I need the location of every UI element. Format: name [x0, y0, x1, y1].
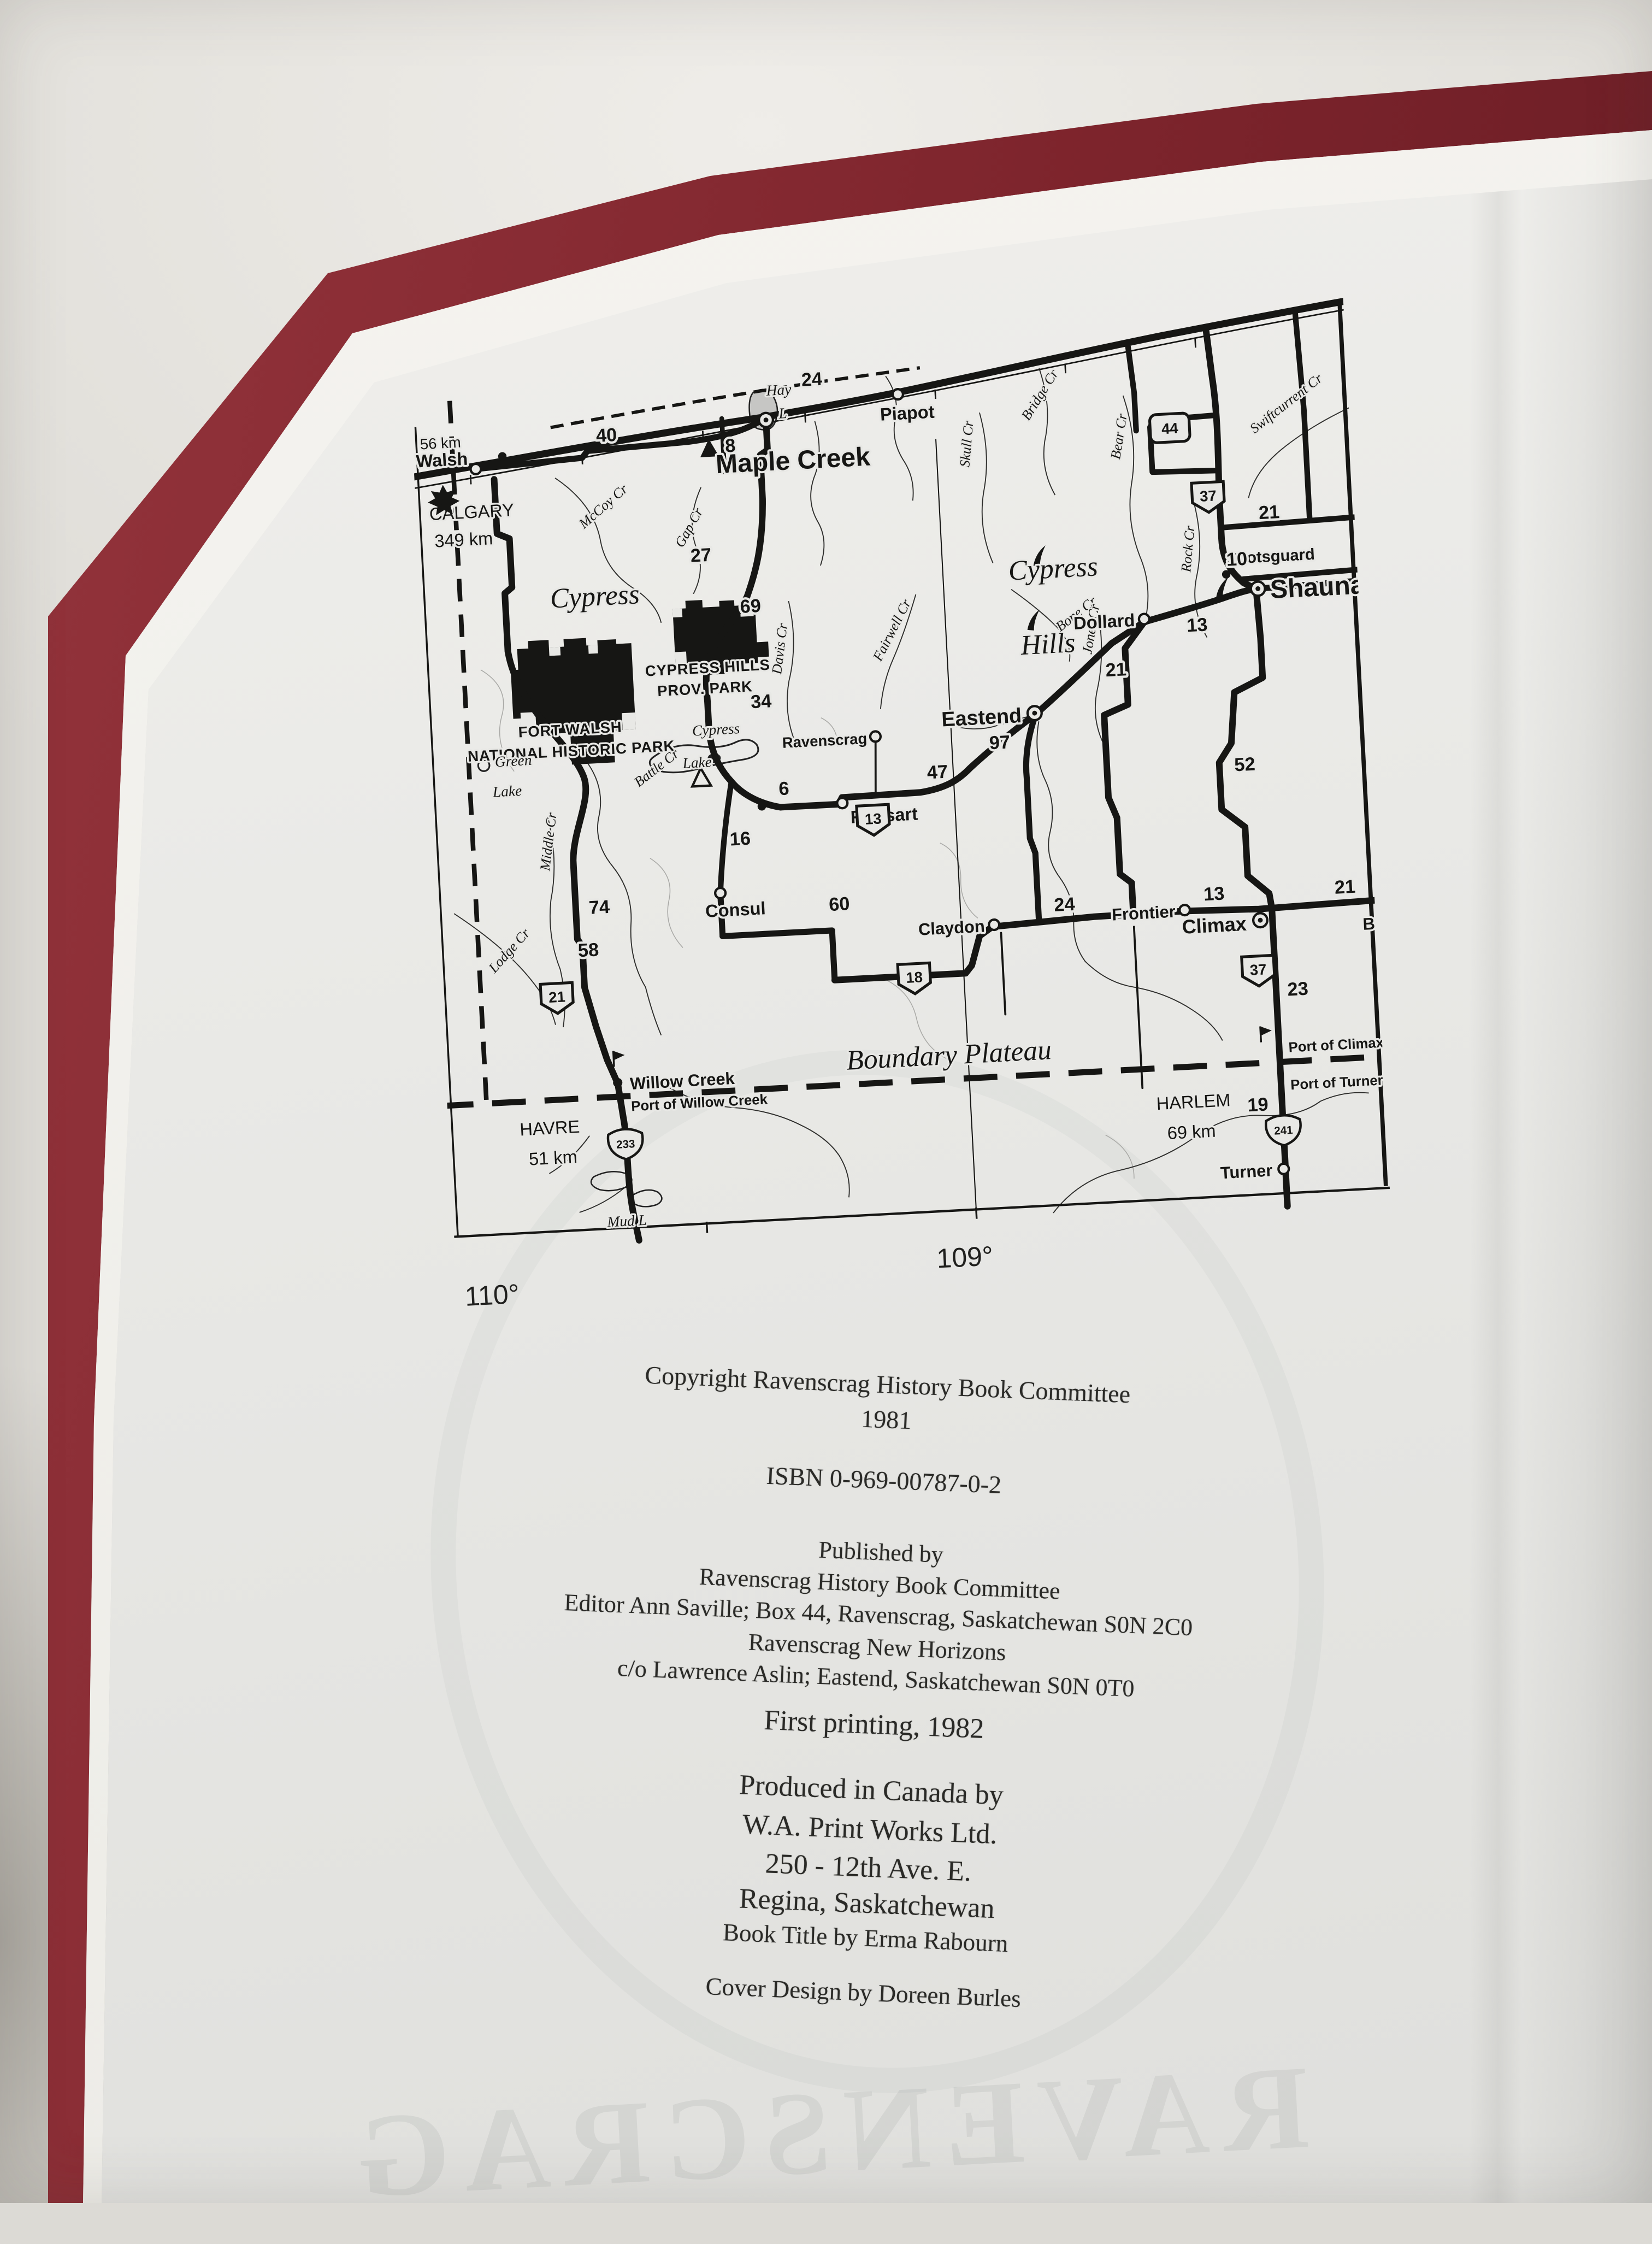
us-route-shield: 241	[1265, 1115, 1301, 1146]
park-area	[686, 600, 703, 610]
road	[1295, 311, 1310, 520]
page-crease	[1470, 0, 1521, 2203]
creek-label: Bridge Cr	[1018, 366, 1062, 423]
shield-number: 13	[864, 810, 882, 828]
colophon-text-block: Copyright Ravenscrag History Book Commit…	[204, 1321, 1544, 2127]
point-of-interest-icon	[1026, 610, 1041, 631]
boxed-route-shield: 44	[1149, 413, 1190, 443]
shield-number: 37	[1249, 961, 1267, 979]
route-number: 52	[1234, 754, 1255, 776]
road	[1221, 516, 1362, 527]
route-number: 13	[1203, 883, 1225, 905]
lake-label: Mud L	[606, 1212, 647, 1230]
town-circle	[470, 463, 481, 474]
route-number: 24	[1053, 894, 1075, 916]
town-label: Eastend	[941, 704, 1022, 731]
town-circle	[1278, 1163, 1289, 1174]
route-number: 69	[740, 596, 762, 617]
region-label: Boundary Plateau	[846, 1034, 1052, 1076]
creek-label: Gap Cr	[671, 504, 706, 550]
shield-number: 44	[1161, 420, 1179, 438]
railway-tick	[470, 475, 471, 484]
creek-line	[977, 413, 993, 564]
railway-tick	[1065, 364, 1066, 373]
town-label: Piapot	[880, 402, 935, 425]
provincial-highway-shield: 18	[898, 963, 931, 994]
map-note-label: Port of Climax	[1288, 1035, 1384, 1055]
provincial-highway-shield: 21	[540, 982, 574, 1014]
shield-number: 1	[440, 496, 447, 509]
town-circle	[1138, 614, 1149, 625]
longitude-label-109: 109°	[936, 1240, 994, 1274]
park-area	[719, 600, 734, 608]
town-label: Ravenscrag	[782, 730, 868, 751]
flag-pennant	[613, 1050, 625, 1060]
park-notch	[549, 647, 560, 656]
park-area	[753, 641, 769, 657]
route-number: 23	[1287, 979, 1309, 1000]
town-label: Claydon	[918, 916, 985, 939]
town-circle	[1179, 905, 1190, 916]
map-note-label: HAVRE	[519, 1116, 580, 1140]
park-area	[597, 639, 616, 648]
customs-flag-icon	[1260, 1026, 1272, 1042]
town-circle	[893, 389, 904, 400]
wedge-icon	[1026, 610, 1041, 631]
lake-label: L	[778, 405, 788, 422]
railway-tick	[805, 413, 806, 422]
creek-label: Skull Cr	[957, 420, 976, 468]
route-number: 6	[778, 778, 789, 799]
creek-label: Fairwell Cr	[870, 596, 914, 664]
creek-line	[807, 421, 825, 566]
town-label: Frontier	[1111, 902, 1176, 924]
map-note-label: 349 km	[434, 528, 493, 551]
creek-label: Davis Cr	[769, 622, 790, 676]
road	[873, 739, 878, 794]
map-block: CypressCypressHillsBoundary PlateauCYPRE…	[408, 296, 1395, 1335]
route-number: 97	[989, 732, 1011, 753]
creek-label: McCoy Cr	[575, 481, 631, 532]
page-gutter-shadow	[1521, 0, 1652, 2203]
town-label: Climax	[1182, 912, 1247, 938]
cypress-hills-area-map: CypressCypressHillsBoundary PlateauCYPRE…	[408, 296, 1392, 1272]
meridian-tick	[976, 1208, 977, 1219]
route-number: 16	[729, 828, 751, 850]
route-number: 19	[1247, 1094, 1269, 1116]
map-note-label: HARLEM	[1156, 1089, 1231, 1114]
map-note-label: 51 km	[528, 1146, 578, 1169]
photo-scene: RAVENSCRAG CypressCypressHillsBoundary P…	[0, 0, 1652, 2203]
route-number: 10	[1226, 549, 1248, 570]
park-notch	[588, 645, 598, 653]
road	[723, 930, 835, 986]
route-number: 58	[577, 939, 599, 961]
customs-flag-icon	[613, 1050, 626, 1067]
us-route-shield: 233	[607, 1128, 644, 1160]
park-label: PROV. PARK	[657, 678, 753, 699]
town-label: Dollard	[1073, 610, 1135, 633]
shield-number: 21	[548, 988, 565, 1006]
route-number: 40	[595, 425, 617, 446]
railway-tick	[1195, 338, 1196, 348]
road	[776, 715, 1039, 808]
town-circle	[989, 920, 1000, 930]
region-label: Cypress	[1007, 551, 1099, 587]
town-label: Turner	[1220, 1161, 1273, 1182]
town-circle	[870, 731, 881, 742]
meridian-109-line	[936, 439, 976, 1210]
route-number: 60	[828, 893, 850, 915]
route-number: 21	[1105, 659, 1127, 681]
town-circle	[837, 798, 848, 809]
lake-label: Hay	[765, 381, 792, 398]
railway-tick	[935, 390, 936, 399]
provincial-highway-shield: 13	[857, 804, 890, 836]
map-note-label: Port of Turner	[1290, 1073, 1384, 1093]
route-number: 21	[1258, 502, 1280, 523]
contour-line	[650, 857, 683, 949]
town-circle	[715, 888, 726, 899]
creek-line	[454, 909, 556, 1030]
route-number: 8	[724, 435, 736, 457]
map-neatline-bottom	[454, 1187, 1391, 1236]
park-area	[564, 638, 587, 648]
road	[1001, 933, 1005, 1014]
route-number: 21	[1334, 876, 1356, 898]
park-notch	[672, 609, 682, 617]
lake-label: Green	[494, 752, 532, 770]
road	[1023, 717, 1045, 919]
town-label: Consul	[705, 898, 766, 921]
park-notch	[622, 712, 636, 730]
region-label: Cypress	[550, 579, 641, 615]
shield-number: 241	[1274, 1124, 1293, 1138]
route-number: 74	[588, 897, 610, 918]
flag-pennant	[1260, 1026, 1272, 1035]
park-area	[528, 640, 549, 650]
town-label: Walsh	[416, 449, 469, 472]
map-neatline-right	[1340, 302, 1386, 1186]
creek-label: Middle Cr	[537, 811, 560, 872]
longitude-label-110: 110°	[464, 1278, 520, 1312]
creek-label: Lodge Cr	[485, 925, 533, 976]
shield-number: 233	[616, 1138, 635, 1151]
park-label: CYPRESS HILLS	[645, 656, 770, 680]
provincial-highway-shield: 37	[1242, 955, 1275, 987]
map-note-label: 69 km	[1167, 1121, 1217, 1144]
route-number: 24	[801, 369, 823, 391]
route-number: 27	[690, 545, 712, 567]
route-number: 13	[1186, 614, 1208, 636]
creek-label: Rock Cr	[1178, 525, 1197, 573]
meridian-tick	[706, 1222, 707, 1233]
town-label: Maple Creek	[715, 443, 871, 480]
creek-label: Bear Cr	[1107, 412, 1130, 460]
shield-number: 37	[1199, 487, 1217, 505]
route-number: 34	[750, 691, 772, 712]
lake-label: Cypress	[692, 720, 740, 739]
region-label: Hills	[1019, 627, 1076, 661]
road	[1134, 927, 1142, 1088]
map-note-label: B	[1362, 914, 1376, 934]
shield-number: 18	[906, 968, 923, 986]
route-number: 47	[927, 762, 948, 784]
lake-label: Lake	[492, 782, 522, 800]
lake-label: Lake	[682, 753, 712, 771]
